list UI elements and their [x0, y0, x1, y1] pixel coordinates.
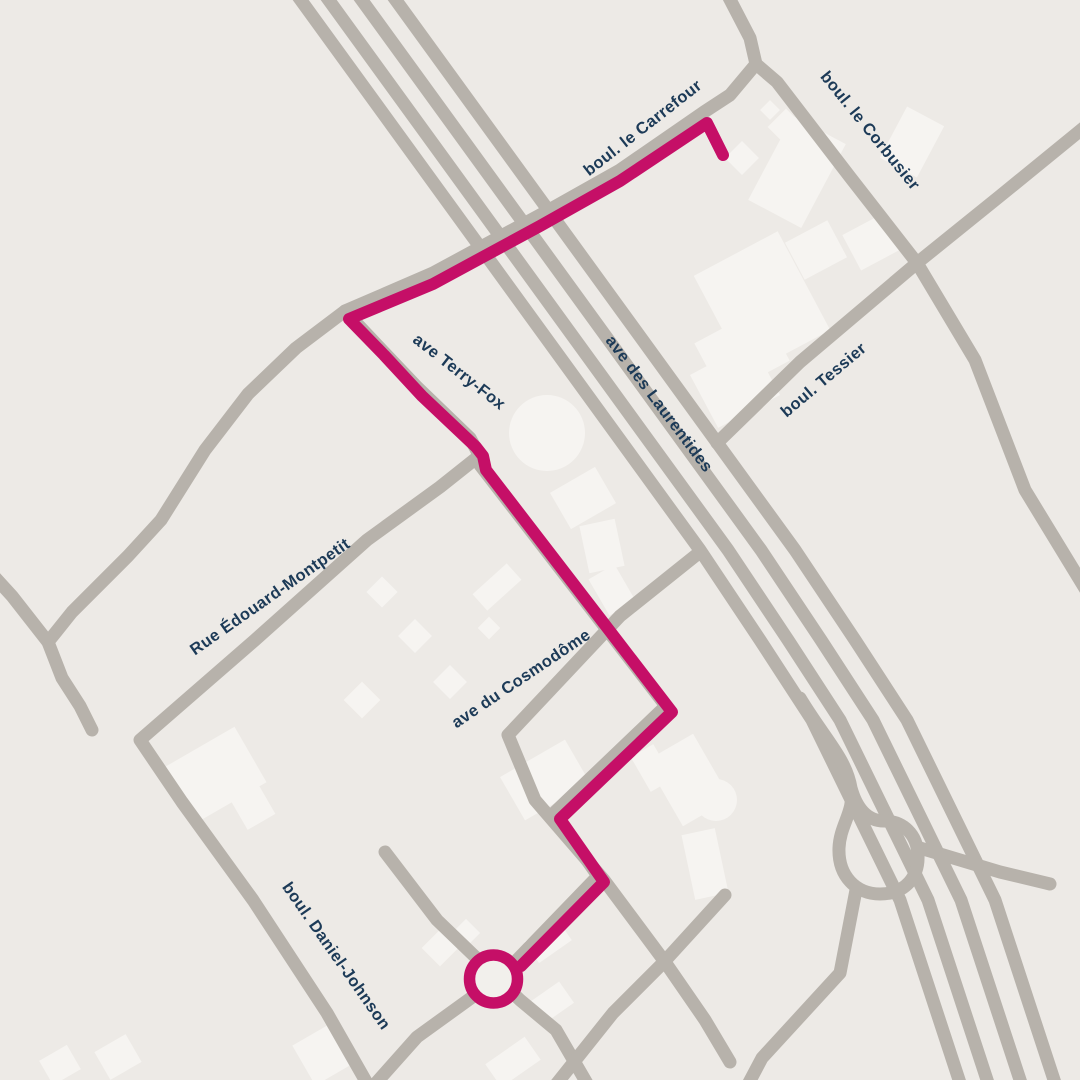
route-roundabout-ring [470, 955, 518, 1003]
building-circle [695, 779, 737, 821]
building-circle [509, 395, 585, 471]
route-map-canvas: boul. le Carrefourboul. le Corbusierave … [0, 0, 1080, 1080]
map-svg: boul. le Carrefourboul. le Corbusierave … [0, 0, 1080, 1080]
